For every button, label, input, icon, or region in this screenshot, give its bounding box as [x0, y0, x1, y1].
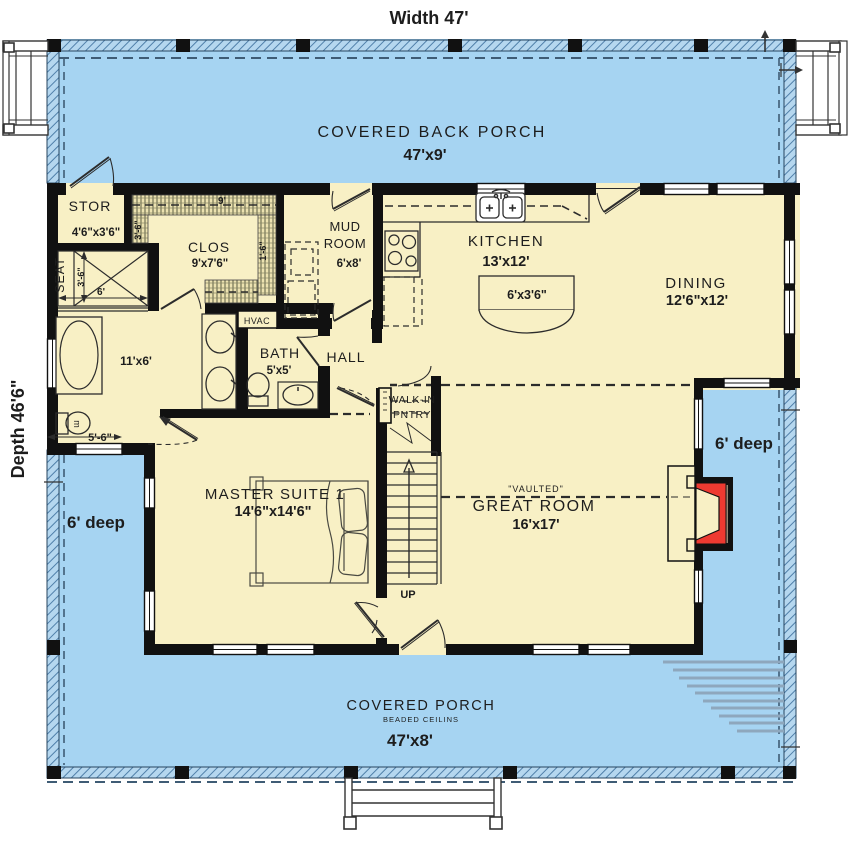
svg-text:5'-6": 5'-6" [88, 432, 112, 444]
svg-text:STOR: STOR [69, 198, 112, 214]
svg-text:5'x5': 5'x5' [267, 365, 292, 377]
svg-text:HVAC: HVAC [244, 316, 270, 326]
svg-text:11'x6': 11'x6' [120, 354, 152, 368]
svg-text:Depth 46'6": Depth 46'6" [8, 380, 28, 479]
svg-text:WALK-IN: WALK-IN [389, 394, 436, 406]
svg-text:Width 47': Width 47' [389, 8, 468, 28]
svg-text:6'x8': 6'x8' [337, 258, 362, 270]
svg-text:9'x7'6": 9'x7'6" [192, 258, 229, 270]
svg-text:12'6"x12': 12'6"x12' [666, 293, 728, 309]
svg-text:BATH: BATH [260, 345, 300, 361]
svg-text:"VAULTED": "VAULTED" [508, 484, 564, 494]
svg-text:MUD: MUD [329, 219, 360, 234]
svg-text:6' deep: 6' deep [715, 434, 773, 453]
svg-text:9': 9' [218, 196, 226, 207]
svg-text:COVERED BACK PORCH: COVERED BACK PORCH [318, 124, 547, 141]
svg-text:GREAT ROOM: GREAT ROOM [473, 498, 596, 515]
svg-text:COVERED PORCH: COVERED PORCH [347, 698, 496, 714]
svg-text:3'-6": 3'-6" [133, 220, 143, 239]
svg-text:1'-6": 1'-6" [258, 241, 268, 260]
svg-text:ROOM: ROOM [324, 236, 366, 251]
svg-text:6': 6' [97, 287, 105, 298]
svg-text:KITCHEN: KITCHEN [468, 233, 544, 250]
svg-text:16'x17': 16'x17' [512, 517, 559, 533]
svg-text:6' deep: 6' deep [67, 513, 125, 532]
svg-text:SEAT: SEAT [53, 257, 67, 293]
svg-text:BEADED CEILINS: BEADED CEILINS [383, 715, 459, 724]
svg-text:3'-6": 3'-6" [76, 267, 86, 286]
svg-text:UP: UP [400, 589, 415, 601]
svg-text:DINING: DINING [665, 275, 727, 292]
svg-text:6'x3'6": 6'x3'6" [507, 288, 547, 302]
svg-text:PNTRY: PNTRY [393, 409, 431, 421]
svg-text:m: m [72, 420, 82, 428]
svg-text:47'x9': 47'x9' [403, 147, 446, 164]
svg-text:14'6"x14'6": 14'6"x14'6" [234, 504, 311, 520]
svg-text:CLOS: CLOS [188, 239, 230, 255]
svg-text:MASTER SUITE 1: MASTER SUITE 1 [205, 486, 345, 503]
svg-text:4'6"x3'6": 4'6"x3'6" [72, 227, 120, 239]
svg-text:13'x12': 13'x12' [482, 254, 529, 270]
svg-text:HALL: HALL [326, 349, 365, 365]
svg-text:47'x8': 47'x8' [387, 731, 433, 750]
